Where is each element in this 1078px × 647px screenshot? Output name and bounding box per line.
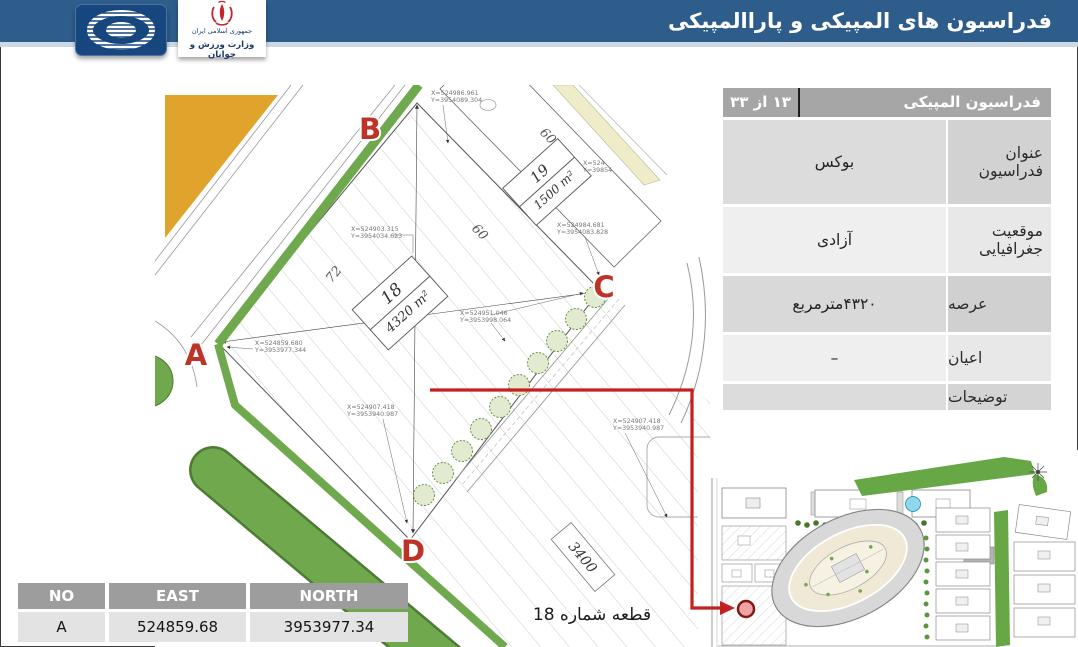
page-title: فدراسیون های المپیکی و پاراالمپیکی bbox=[668, 0, 1052, 42]
olympic-rings-oval-icon bbox=[76, 5, 166, 55]
svg-text:X=524984.681: X=524984.681 bbox=[557, 222, 605, 229]
corner-label-a: A bbox=[185, 338, 208, 372]
svg-text:Y=3953977.344: Y=3953977.344 bbox=[254, 347, 306, 354]
site-survey-drawing: 18 4320 m² 19 1500 m² 3400 72 60 60 bbox=[155, 85, 710, 647]
svg-text:X=524907.418: X=524907.418 bbox=[613, 418, 661, 425]
table-row: – اعیان bbox=[723, 335, 1051, 381]
info-table-header: ۱۳ از ۳۳ فدراسیون المپیکی bbox=[723, 88, 1051, 117]
federation-name-value: بوکس bbox=[723, 120, 946, 204]
iran-emblem-icon bbox=[178, 0, 266, 26]
svg-text:X=524986.961: X=524986.961 bbox=[431, 90, 479, 97]
ministry-logo-line1: جمهوری اسلامی ایران bbox=[178, 27, 266, 35]
svg-text:X=524: X=524 bbox=[583, 160, 605, 167]
table-row: ۴۳۲۰مترمربع عرصه bbox=[723, 276, 1051, 332]
svg-text:Y=39854: Y=39854 bbox=[582, 167, 612, 174]
federation-info-table: ۱۳ از ۳۳ فدراسیون المپیکی بوکس عنوان فدر… bbox=[723, 88, 1051, 410]
plot-callout-label: قطعه شماره 18 bbox=[498, 605, 686, 631]
svg-text:Y=3954083.828: Y=3954083.828 bbox=[556, 229, 608, 236]
land-area-value: ۴۳۲۰مترمربع bbox=[723, 276, 946, 332]
federation-name-label: عنوان فدراسیون bbox=[948, 120, 1051, 204]
location-label: موقعیت جغرافیایی bbox=[948, 207, 1051, 273]
point-id-cell: A bbox=[18, 612, 105, 642]
notes-value bbox=[723, 384, 946, 410]
location-value: آزادی bbox=[723, 207, 946, 273]
slide-page: فدراسیون های المپیکی و پاراالمپیکی bbox=[0, 0, 1078, 647]
north-cell: 3953977.34 bbox=[250, 612, 408, 642]
table-row: آزادی موقعیت جغرافیایی bbox=[723, 207, 1051, 273]
svg-text:Y=3954034.623: Y=3954034.623 bbox=[350, 233, 402, 240]
svg-text:Y=3953940.987: Y=3953940.987 bbox=[612, 425, 664, 432]
table-row: بوکس عنوان فدراسیون bbox=[723, 120, 1051, 204]
land-area-label: عرصه bbox=[948, 276, 1051, 332]
svg-text:X=524907.418: X=524907.418 bbox=[347, 404, 395, 411]
page-indicator: ۱۳ از ۳۳ bbox=[723, 88, 800, 117]
svg-text:X=524859.680: X=524859.680 bbox=[255, 340, 303, 347]
svg-text:Y=3953998.064: Y=3953998.064 bbox=[459, 317, 511, 324]
corner-label-b: B bbox=[359, 112, 381, 146]
east-cell: 524859.68 bbox=[109, 612, 246, 642]
overview-map bbox=[698, 450, 1078, 647]
col-header-north: NORTH bbox=[250, 583, 408, 609]
svg-text:Y=3954089.304: Y=3954089.304 bbox=[430, 97, 482, 104]
svg-text:X=524951.046: X=524951.046 bbox=[460, 310, 508, 317]
table-row: توضیحات bbox=[723, 384, 1051, 410]
corner-label-d: D bbox=[401, 534, 425, 568]
svg-text:Y=3953940.987: Y=3953940.987 bbox=[346, 411, 398, 418]
info-table-title: فدراسیون المپیکی bbox=[800, 88, 1051, 117]
coordinates-table-header: NO EAST NORTH bbox=[18, 583, 412, 609]
col-header-no: NO bbox=[18, 583, 105, 609]
buildings-label: اعیان bbox=[948, 335, 1051, 381]
corner-label-c: C bbox=[593, 270, 614, 304]
ministry-logo-line2: وزارت ورزش و جوانان bbox=[178, 40, 266, 60]
col-header-east: EAST bbox=[109, 583, 246, 609]
buildings-value: – bbox=[723, 335, 946, 381]
notes-label: توضیحات bbox=[948, 384, 1051, 410]
olympic-committee-logo bbox=[75, 4, 167, 56]
orange-land-block bbox=[165, 95, 278, 238]
ministry-logo: جمهوری اسلامی ایران وزارت ورزش و جوانان bbox=[178, 0, 266, 57]
table-row: A 524859.68 3953977.34 bbox=[18, 609, 412, 642]
coordinates-table: NO EAST NORTH A 524859.68 3953977.34 bbox=[18, 583, 412, 642]
svg-text:X=524903.315: X=524903.315 bbox=[351, 226, 399, 233]
